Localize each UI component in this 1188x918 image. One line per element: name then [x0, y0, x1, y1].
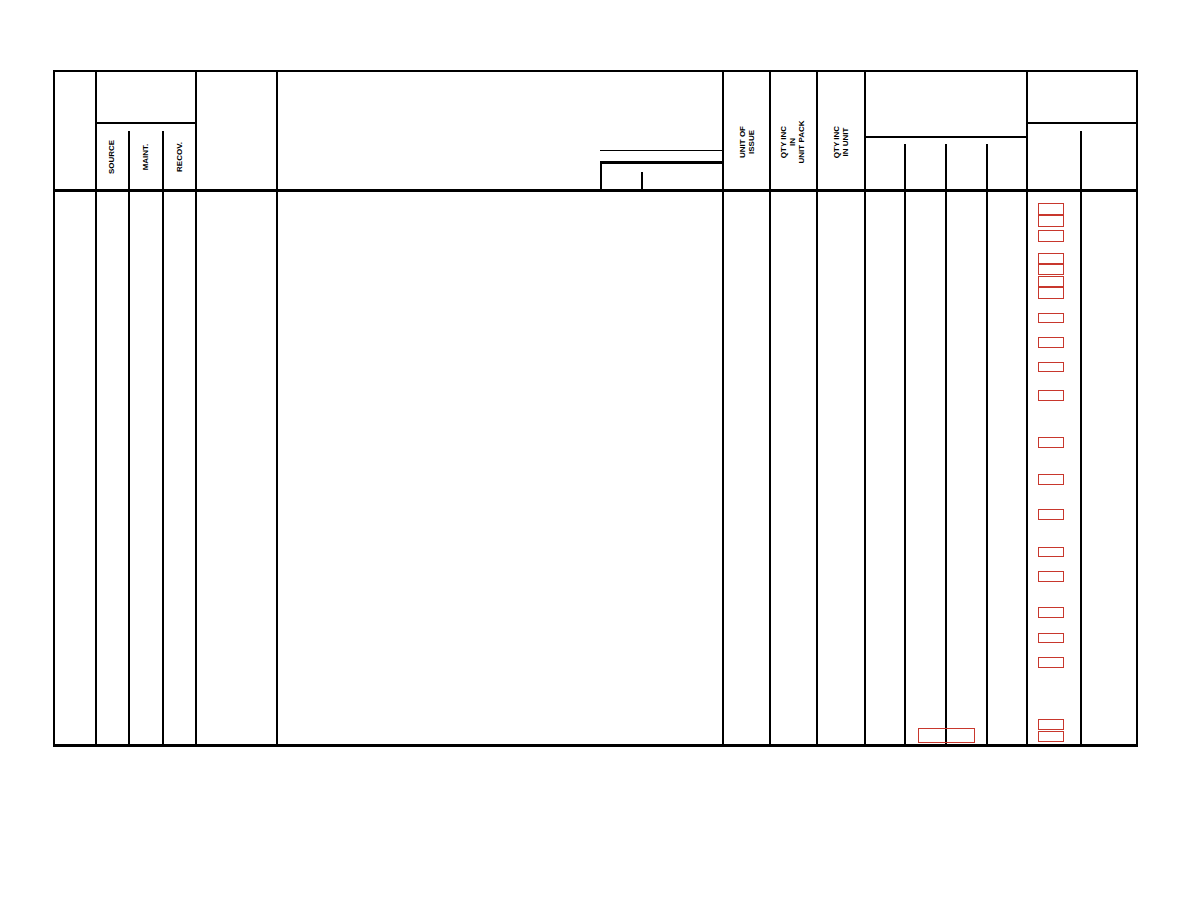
unit-of-issue-column-label: UNIT OF ISSUE	[738, 126, 756, 158]
column-divider	[195, 70, 197, 744]
smr-sub-divider	[128, 131, 130, 744]
column-divider	[864, 70, 866, 744]
red-mark	[1038, 437, 1064, 448]
mid-right-subheader-rule	[865, 136, 1027, 138]
red-mark	[1038, 313, 1064, 323]
red-mark	[1038, 474, 1064, 485]
red-mark	[1038, 571, 1064, 582]
table-right-border	[1136, 70, 1138, 747]
far-right-sub-divider	[1080, 131, 1082, 744]
red-mark	[1038, 731, 1064, 742]
red-mark	[1038, 264, 1064, 275]
smr-subheader-rule	[95, 122, 196, 124]
far-right-subheader-rule	[1027, 122, 1137, 124]
middle-tick	[600, 163, 602, 189]
column-divider	[1026, 70, 1028, 744]
mid-right-sub-divider	[945, 144, 947, 744]
red-mark	[1038, 657, 1064, 668]
table-bottom-border	[53, 744, 1138, 747]
red-mark	[1038, 337, 1064, 348]
mid-right-sub-divider	[986, 144, 988, 744]
qty-inc-in-unit-pack-column-label: QTY INC IN UNIT PACK	[779, 121, 807, 164]
red-mark	[1038, 607, 1064, 618]
table-left-border	[53, 70, 55, 747]
maint-column-label: MAINT.	[141, 144, 150, 171]
red-mark	[1038, 509, 1064, 520]
red-mark	[1038, 547, 1064, 557]
red-mark	[1038, 203, 1064, 215]
column-divider	[722, 70, 724, 744]
red-mark	[1038, 287, 1064, 299]
red-mark	[1038, 719, 1064, 730]
column-divider	[95, 70, 97, 744]
column-divider	[816, 70, 818, 744]
middle-thin-rule	[600, 150, 723, 151]
table-top-border	[53, 70, 1138, 72]
middle-tick	[641, 172, 643, 189]
red-wide-mark	[918, 728, 975, 743]
red-mark	[1038, 215, 1064, 227]
source-column-label: SOURCE	[107, 140, 116, 174]
qty-inc-in-unit-column-label: QTY INC IN UNIT	[832, 126, 850, 158]
column-divider	[769, 70, 771, 744]
red-mark	[1038, 633, 1064, 643]
smr-sub-divider	[162, 131, 164, 744]
red-mark	[1038, 390, 1064, 401]
red-mark	[1038, 276, 1064, 287]
column-divider	[276, 70, 278, 744]
mid-right-sub-divider	[904, 144, 906, 744]
red-mark	[1038, 253, 1064, 264]
red-mark	[1038, 230, 1064, 242]
header-body-separator	[53, 189, 1138, 192]
recov-column-label: RECOV.	[175, 142, 184, 172]
red-mark	[1038, 362, 1064, 372]
blank-parts-list-form-page: SOURCE MAINT. RECOV. UNIT OF ISSUE QTY I…	[0, 0, 1188, 918]
middle-thick-rule	[600, 161, 723, 164]
